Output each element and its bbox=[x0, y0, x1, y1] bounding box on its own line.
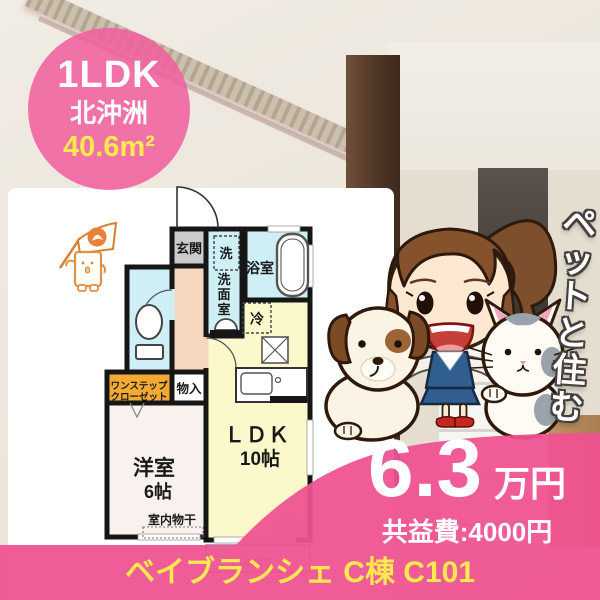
badge-area: 40.6m² bbox=[63, 131, 155, 164]
listing-card: 玄関 洗 洗 面 室 浴室 冷 ＬＤＫ 10帖 洋室 6帖 ワンステップ クロー… bbox=[0, 0, 600, 600]
badge-layout: 1LDK bbox=[57, 54, 160, 98]
rent-amount: 6.3 bbox=[368, 428, 482, 510]
price-block: 6.3 万円 共益費:4000円 bbox=[338, 428, 596, 549]
property-badge: 1LDK 北沖洲 40.6m² bbox=[28, 28, 190, 190]
badge-district: 北沖洲 bbox=[70, 99, 148, 129]
building-name: ベイブランシェ C棟 C101 bbox=[0, 545, 600, 600]
common-fee: 共益費:4000円 bbox=[338, 512, 596, 549]
rent-unit: 万円 bbox=[494, 455, 566, 507]
